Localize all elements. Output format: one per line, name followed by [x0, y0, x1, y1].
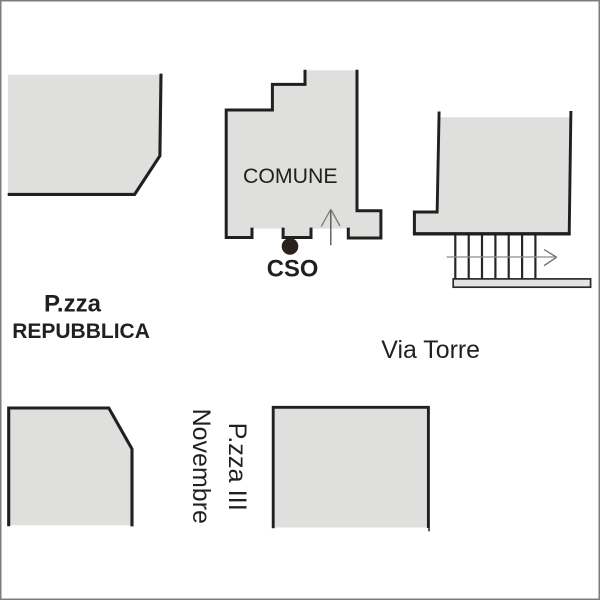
svg-text:CSO: CSO [267, 256, 319, 283]
svg-text:REPUBBLICA: REPUBBLICA [12, 320, 150, 343]
svg-text:P.zza: P.zza [44, 290, 102, 317]
svg-text:COMUNE: COMUNE [243, 164, 338, 188]
svg-text:Via Torre: Via Torre [381, 336, 480, 364]
svg-text:Novembre: Novembre [187, 409, 215, 524]
svg-text:P.zza III: P.zza III [223, 423, 251, 511]
